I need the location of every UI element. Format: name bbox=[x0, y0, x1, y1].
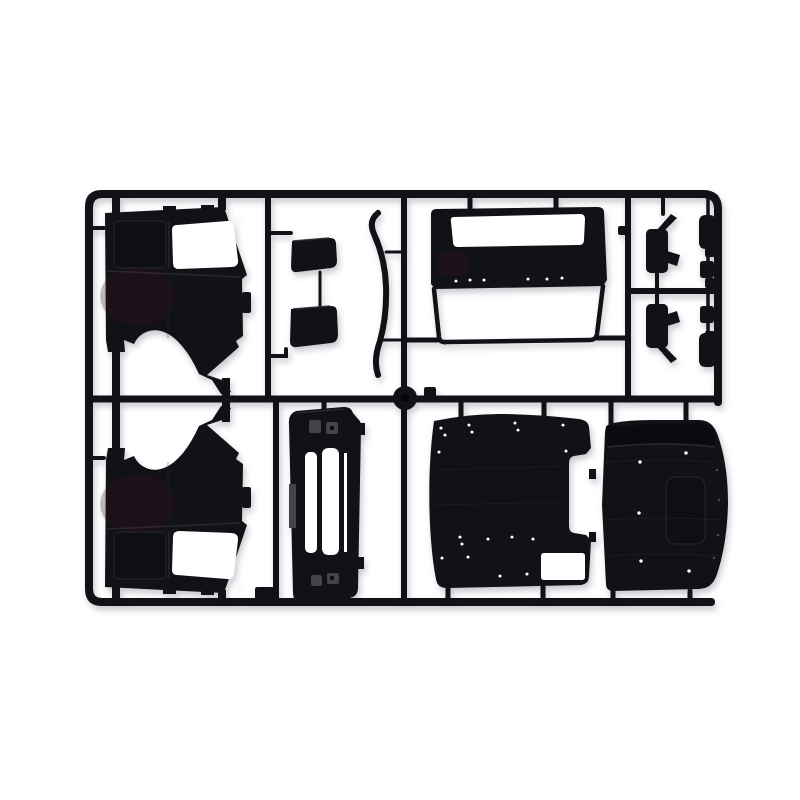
sprue-photo bbox=[0, 0, 800, 800]
floor-cutout bbox=[541, 553, 585, 580]
cab-side-panel-left bbox=[100, 196, 251, 402]
roof-panel bbox=[602, 420, 728, 591]
sunroof-recess bbox=[666, 477, 705, 544]
plastic-sheen bbox=[437, 252, 469, 276]
roof-front-band bbox=[606, 423, 716, 446]
rivet-hole bbox=[454, 279, 457, 282]
grille-side-step bbox=[289, 484, 296, 528]
grille-slot-right bbox=[322, 448, 339, 555]
grille-tab bbox=[357, 423, 365, 435]
windshield-frame-panel bbox=[431, 207, 607, 342]
rail-tab bbox=[424, 387, 436, 398]
injection-gate-core bbox=[401, 394, 409, 402]
rivet-hole bbox=[482, 278, 485, 281]
visor-bracket-upper bbox=[291, 238, 337, 272]
grille-bottom-detail bbox=[311, 575, 322, 586]
mirror-housing-lower bbox=[646, 304, 680, 363]
visor-bracket-lower bbox=[290, 306, 338, 347]
floor-hook bbox=[589, 469, 596, 479]
trim-strip bbox=[372, 213, 386, 375]
mirror-housing-upper bbox=[646, 214, 680, 273]
windshield-aperture bbox=[451, 214, 585, 247]
rivet-hole bbox=[545, 277, 548, 280]
rail-junction-block bbox=[255, 587, 279, 601]
grille-panel bbox=[289, 407, 365, 602]
bracket-body bbox=[290, 306, 338, 347]
grille-bottom-hole bbox=[330, 576, 334, 580]
mirror-pill-2 bbox=[700, 261, 714, 278]
floor-hook bbox=[589, 532, 596, 542]
bracket-body bbox=[291, 238, 337, 272]
rail-tab bbox=[618, 226, 631, 235]
rivet-hole bbox=[526, 277, 529, 280]
lower-frame-opening bbox=[434, 286, 603, 342]
grille-slot-sliver bbox=[344, 453, 347, 552]
floor-panel bbox=[429, 414, 596, 588]
mirror-pill-1 bbox=[699, 215, 716, 249]
cab-side-panel-right bbox=[100, 398, 251, 604]
product-photo bbox=[0, 0, 800, 800]
rivet-hole bbox=[468, 278, 471, 281]
mirror-pill-3 bbox=[700, 306, 714, 323]
grille-top-hole bbox=[330, 426, 334, 430]
rivet-hole bbox=[560, 276, 563, 279]
mirror-pill-4 bbox=[699, 333, 716, 367]
grille-top-detail bbox=[309, 420, 321, 433]
rail-tab bbox=[705, 278, 715, 288]
grille-slot-left bbox=[305, 452, 317, 553]
grille-tab bbox=[356, 557, 364, 569]
